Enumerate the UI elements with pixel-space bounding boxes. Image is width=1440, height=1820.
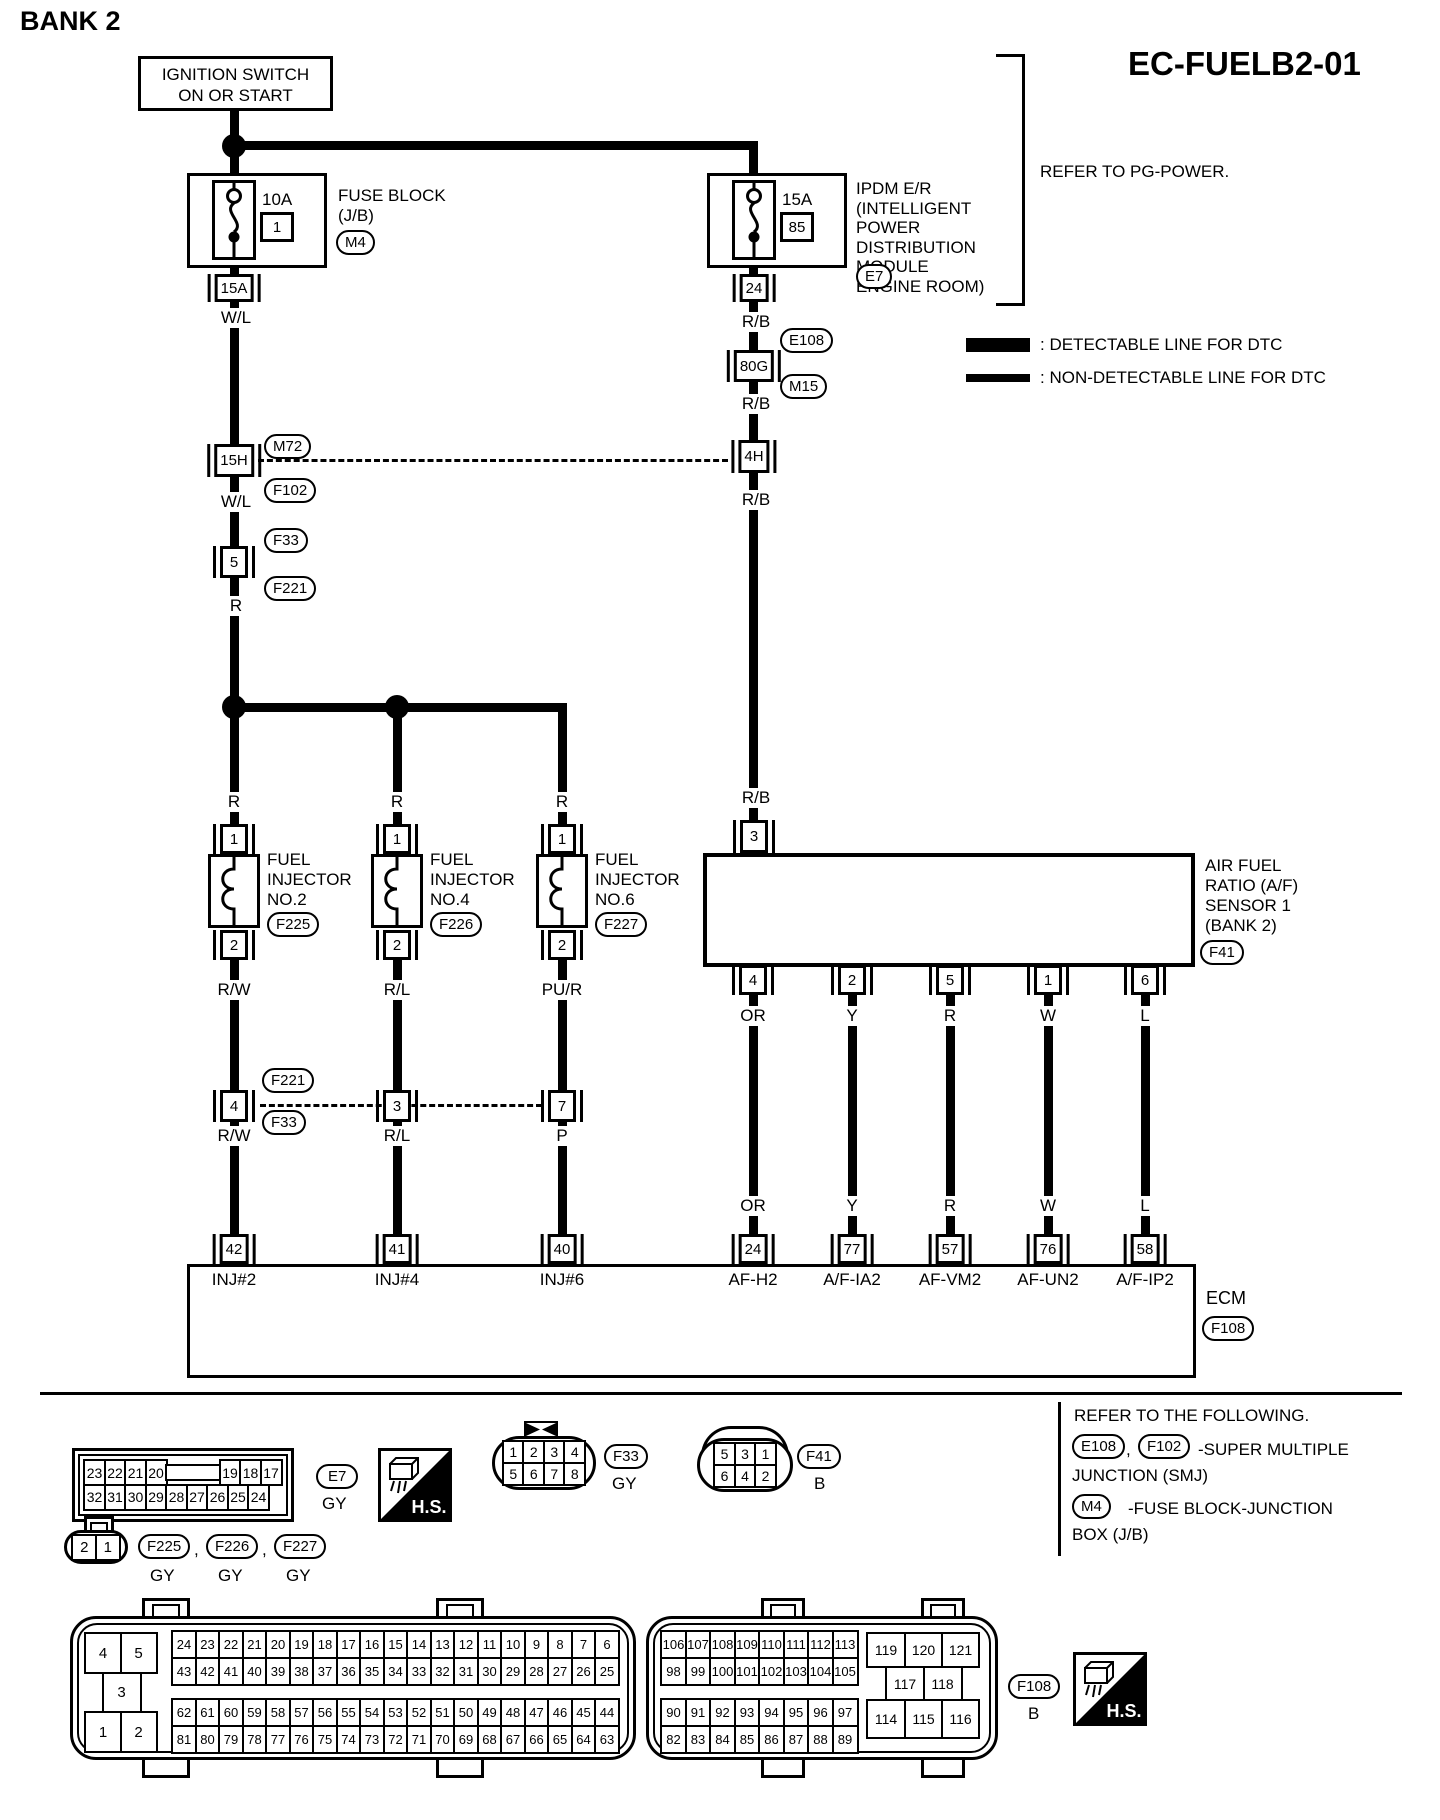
pin-cell: 47 — [524, 1698, 550, 1727]
connector-color: B — [1028, 1704, 1039, 1724]
injector-name: NO.4 — [430, 890, 470, 910]
page-code: EC-FUELB2-01 — [1128, 46, 1361, 82]
ecm-large-pin: 116 — [941, 1699, 980, 1739]
af-sensor-box — [703, 853, 1195, 967]
ecm-large-pin: 120 — [904, 1632, 944, 1668]
pin-cell: 75 — [312, 1725, 338, 1754]
pin-cell: 37 — [312, 1657, 338, 1686]
ecm-connector-tab — [761, 1598, 805, 1618]
refer-jb-text: -FUSE BLOCK-JUNCTION — [1128, 1499, 1333, 1519]
f33-connector-view: 12345678 — [492, 1436, 596, 1490]
connector-color: GY — [612, 1474, 637, 1494]
pin-cell: 46 — [547, 1698, 573, 1727]
coil-icon — [211, 857, 257, 925]
legend-nondetectable-bar — [966, 374, 1030, 382]
pin-cell: 110 — [758, 1630, 785, 1659]
connector-id-e7: E7 — [316, 1464, 358, 1489]
wire-color-label: R/B — [738, 490, 774, 510]
ecm-box — [187, 1264, 1196, 1378]
e7-connector-view: 23222120191817323130292827262524 — [72, 1448, 294, 1522]
pin-cell: 8 — [563, 1462, 586, 1486]
wire-color-label: R — [940, 1196, 960, 1216]
fuse-icon — [732, 180, 776, 260]
wire-color-label: R/B — [738, 394, 774, 414]
connector-color: GY — [218, 1566, 243, 1586]
refer-power-note: REFER TO PG-POWER. — [1040, 162, 1229, 182]
pin-cell: 25 — [594, 1657, 620, 1686]
pin-cell: 72 — [383, 1725, 409, 1754]
pin-5: 5 — [213, 546, 255, 578]
pin-cell: 70 — [430, 1725, 456, 1754]
pin-cell: 29 — [500, 1657, 526, 1686]
fuse-block-box — [187, 173, 327, 268]
pin-cell: 76 — [289, 1725, 315, 1754]
pin-cell: 106 — [660, 1630, 687, 1659]
injector-connector-view: 21 — [64, 1530, 128, 1564]
pin-cell: 33 — [406, 1657, 432, 1686]
f41-connector-view: 531642 — [697, 1438, 793, 1492]
wire-color-label: R/W — [213, 1126, 254, 1146]
connector-color: GY — [150, 1566, 175, 1586]
connector-id-f33: F33 — [262, 1110, 306, 1135]
wire — [230, 475, 239, 549]
hs-harness-icon: H.S. — [1072, 1652, 1148, 1726]
wire — [230, 141, 758, 150]
pin-cell: 74 — [336, 1725, 362, 1754]
ecm-large-pin: 119 — [866, 1632, 906, 1668]
legend-nondetectable-label: : NON-DETECTABLE LINE FOR DTC — [1040, 368, 1326, 388]
ecm-pin-40: 40 — [541, 1234, 584, 1264]
section-divider — [40, 1392, 1402, 1395]
ecm-grid-lower-right: 90919293949596978283848586878889 — [660, 1698, 859, 1754]
pin-cell: 101 — [734, 1657, 761, 1686]
pin-cell: 24 — [247, 1484, 270, 1511]
ecm-connector-tab — [142, 1758, 190, 1778]
pin-cell: 78 — [242, 1725, 268, 1754]
mid-pin-3: 3 — [376, 1090, 418, 1122]
refer-smj-text: -SUPER MULTIPLE — [1198, 1440, 1349, 1460]
pin-cell: 48 — [500, 1698, 526, 1727]
pin-4h: 4H — [731, 440, 776, 473]
pin-15h: 15H — [207, 444, 261, 477]
connector-id-f225: F225 — [267, 912, 319, 937]
pin-cell: 81 — [171, 1725, 197, 1754]
pin-cell: 40 — [242, 1657, 268, 1686]
ipdm-box — [707, 173, 847, 268]
ecm-grid-upper-right: 1061071081091101111121139899100101102103… — [660, 1630, 859, 1686]
ecm-large-pin: 5 — [120, 1632, 158, 1674]
pin-cell: 53 — [383, 1698, 409, 1727]
ignition-line2: ON OR START — [141, 85, 330, 106]
pin-15a: 15A — [208, 274, 261, 302]
ecm-connector-tab — [142, 1598, 190, 1618]
wire-color-label: W — [1036, 1006, 1060, 1026]
ignition-switch-box: IGNITION SWITCH ON OR START — [138, 56, 333, 111]
ignition-line1: IGNITION SWITCH — [141, 64, 330, 85]
pin-cell: 97 — [832, 1698, 859, 1727]
junction-dot — [222, 695, 246, 719]
wire-color-label: L — [1136, 1196, 1153, 1216]
pin-cell: 7 — [571, 1630, 597, 1659]
hs-harness-icon: H.S. — [378, 1448, 452, 1522]
connector-id-f33: F33 — [264, 528, 308, 553]
pin-cell: 103 — [783, 1657, 810, 1686]
injector-name: FUEL — [595, 850, 638, 870]
wire-color-label: R — [226, 596, 246, 616]
mid-pin-4: 4 — [213, 1090, 255, 1122]
pin-cell: 8 — [547, 1630, 573, 1659]
connector-color: GY — [286, 1566, 311, 1586]
ecm-pin: 58 — [1124, 1234, 1167, 1264]
wire-color-label: OR — [736, 1196, 770, 1216]
pin-cell: 111 — [783, 1630, 810, 1659]
pin-cell: 112 — [807, 1630, 834, 1659]
ecm-pin: 24 — [732, 1234, 775, 1264]
pin-cell: 66 — [524, 1725, 550, 1754]
pin-cell: 107 — [685, 1630, 712, 1659]
pin-cell: 79 — [218, 1725, 244, 1754]
pin-cell: 95 — [783, 1698, 810, 1727]
injector-name: NO.2 — [267, 890, 307, 910]
pin-cell: 68 — [477, 1725, 503, 1754]
fuse-amp-label: 10A — [262, 190, 292, 210]
refer-following-title: REFER TO THE FOLLOWING. — [1074, 1406, 1309, 1426]
connector-id-f225: F225 — [138, 1534, 190, 1559]
pin-cell: 108 — [709, 1630, 736, 1659]
pin-cell: 86 — [758, 1725, 785, 1754]
comma: , — [262, 1540, 267, 1560]
pin-cell: 89 — [832, 1725, 859, 1754]
comma: , — [194, 1540, 199, 1560]
wire — [230, 958, 239, 1092]
connector-id-f102: F102 — [1138, 1434, 1190, 1459]
pin-cell: 96 — [807, 1698, 834, 1727]
ecm-large-pin: 4 — [84, 1632, 122, 1674]
connector-id-m15: M15 — [780, 374, 827, 399]
injector-name: INJECTOR — [595, 870, 680, 890]
pin-24: 24 — [733, 274, 776, 302]
connector-id-f226: F226 — [206, 1534, 258, 1559]
pin-cell: 2 — [754, 1464, 777, 1488]
pin-cell: 19 — [289, 1630, 315, 1659]
injector-pin-top: 1 — [541, 824, 583, 854]
pin-cell: 83 — [685, 1725, 712, 1754]
sensor-pin-3: 3 — [733, 820, 775, 853]
pin-cell: 41 — [218, 1657, 244, 1686]
pin-cell: 91 — [685, 1698, 712, 1727]
pin-cell: 60 — [218, 1698, 244, 1727]
wire — [393, 958, 402, 1092]
legend-detectable-label: : DETECTABLE LINE FOR DTC — [1040, 335, 1282, 355]
pin-cell: 35 — [359, 1657, 385, 1686]
refer-smj-text2: JUNCTION (SMJ) — [1072, 1466, 1208, 1486]
fuse-number-box: 1 — [260, 212, 294, 242]
wire-color-label: Y — [842, 1006, 861, 1026]
wire-color-label: R/L — [380, 1126, 414, 1146]
wire-color-label: W — [1036, 1196, 1060, 1216]
ecm-large-pin: 117 — [885, 1666, 925, 1702]
connector-id-m72: M72 — [264, 434, 311, 459]
bracket — [257, 274, 260, 302]
pin-cell: 4 — [563, 1440, 586, 1464]
fuse-block-name2: (J/B) — [338, 206, 374, 226]
ecm-pin: 57 — [929, 1234, 972, 1264]
pin-cell: 16 — [359, 1630, 385, 1659]
connector-id-e108: E108 — [1072, 1434, 1125, 1459]
injector-name: NO.6 — [595, 890, 635, 910]
pin-cell: 84 — [709, 1725, 736, 1754]
refer-bracket — [996, 54, 1025, 306]
ecm-pin: 76 — [1027, 1234, 1070, 1264]
connector-id-m4: M4 — [1072, 1494, 1111, 1519]
wire-color-label: Y — [842, 1196, 861, 1216]
injector-pin-bottom: 2 — [376, 930, 418, 960]
pin-cell: 63 — [594, 1725, 620, 1754]
pin-cell: 98 — [660, 1657, 687, 1686]
wire-color-label: W/L — [217, 308, 255, 328]
pin-cell: 99 — [685, 1657, 712, 1686]
fuse-block-name1: FUSE BLOCK — [338, 186, 446, 206]
pin-cell: 102 — [758, 1657, 785, 1686]
f33-pin-grid: 12345678 — [502, 1440, 587, 1486]
pin-cell: 27 — [547, 1657, 573, 1686]
wiring-diagram-page: BANK 2 EC-FUELB2-01 REFER TO PG-POWER. :… — [0, 0, 1440, 1820]
pin-cell: 45 — [571, 1698, 597, 1727]
pin-cell: 77 — [265, 1725, 291, 1754]
connector-id-f33: F33 — [604, 1444, 648, 1469]
pin-cell: 54 — [359, 1698, 385, 1727]
injector-coil-box — [208, 854, 260, 928]
connector-id-m4: M4 — [336, 230, 375, 255]
pin-cell: 113 — [832, 1630, 859, 1659]
pin-cell: 51 — [430, 1698, 456, 1727]
legend-detectable-bar — [966, 338, 1030, 352]
ecm-large-pin: 3 — [102, 1672, 142, 1714]
ecm-pin-42: 42 — [213, 1234, 256, 1264]
refer-divider — [1058, 1402, 1061, 1556]
wire-color-label: R/L — [380, 980, 414, 1000]
mid-pin-7: 7 — [541, 1090, 583, 1122]
injector-name: INJECTOR — [267, 870, 352, 890]
f41-pin-grid: 531642 — [713, 1442, 777, 1488]
injector-name: INJECTOR — [430, 870, 515, 890]
connector-id-f108: F108 — [1202, 1316, 1254, 1341]
pin-cell: 104 — [807, 1657, 834, 1686]
sensor-name: AIR FUEL — [1205, 856, 1282, 876]
ecm-large-pin: 114 — [866, 1699, 906, 1739]
injector-pin-top: 1 — [376, 824, 418, 854]
pin-cell: 22 — [218, 1630, 244, 1659]
ecm-connector-tab — [761, 1758, 805, 1778]
ecm-large-pin: 2 — [120, 1711, 158, 1753]
pin-80g: 80G — [727, 350, 781, 382]
wire-color-label: P — [552, 1126, 571, 1146]
sensor-name: (BANK 2) — [1205, 916, 1277, 936]
wire-color-label: R — [940, 1006, 960, 1026]
coil-icon — [374, 857, 420, 925]
ipdm-amp-label: 15A — [782, 190, 812, 210]
pin-cell: 90 — [660, 1698, 687, 1727]
pin-cell: 11 — [477, 1630, 503, 1659]
pin-cell: 55 — [336, 1698, 362, 1727]
pin-cell: 44 — [594, 1698, 620, 1727]
ecm-connector-tab — [921, 1598, 965, 1618]
pin-cell: 87 — [783, 1725, 810, 1754]
sensor-pin: 1 — [1027, 965, 1069, 995]
pin-cell: 28 — [524, 1657, 550, 1686]
ecm-large-pin: 1 — [84, 1711, 122, 1753]
sensor-name: RATIO (A/F) — [1205, 876, 1298, 896]
wire-color-label: R — [387, 792, 407, 812]
pin-cell: 61 — [195, 1698, 221, 1727]
connector-id-f221: F221 — [264, 576, 316, 601]
pin-cell: 17 — [260, 1459, 283, 1486]
junction-dot — [222, 134, 246, 158]
ecm-connector-tab — [436, 1598, 484, 1618]
injector-pin-top: 1 — [213, 824, 255, 854]
connector-id-f227: F227 — [274, 1534, 326, 1559]
smj-dashed-link — [258, 459, 728, 462]
pin-cell — [165, 1464, 221, 1481]
pin-cell: 82 — [660, 1725, 687, 1754]
ecm-connector-tab — [921, 1758, 965, 1778]
wire-color-label: R/B — [738, 312, 774, 332]
wire-color-label: R/B — [738, 788, 774, 808]
wire-color-label: R — [552, 792, 572, 812]
connector-id-f227: F227 — [595, 912, 647, 937]
wire — [749, 470, 758, 822]
pin-cell: 23 — [195, 1630, 221, 1659]
connector-id-f102: F102 — [264, 478, 316, 503]
pin-cell: 24 — [171, 1630, 197, 1659]
pin-cell: 92 — [709, 1698, 736, 1727]
hs-label: H.S. — [411, 1497, 446, 1517]
pin-cell: 34 — [383, 1657, 409, 1686]
e7-pin-grid: 23222120191817323130292827262524 — [83, 1459, 283, 1511]
pin-cell: 56 — [312, 1698, 338, 1727]
fuse-icon — [212, 180, 256, 260]
connector-id-f41: F41 — [797, 1444, 841, 1469]
pin-cell: 105 — [832, 1657, 859, 1686]
pin-cell: 100 — [709, 1657, 736, 1686]
pin-cell: 57 — [289, 1698, 315, 1727]
pin-cell: 52 — [406, 1698, 432, 1727]
pin-cell: 58 — [265, 1698, 291, 1727]
pin-cell: 9 — [524, 1630, 550, 1659]
pin-cell: 31 — [453, 1657, 479, 1686]
pin-cell: 21 — [242, 1630, 268, 1659]
connector-id-f226: F226 — [430, 912, 482, 937]
pin-cell: 67 — [500, 1725, 526, 1754]
bracket — [208, 274, 211, 302]
pin-cell: 18 — [312, 1630, 338, 1659]
pin-cell: 85 — [734, 1725, 761, 1754]
connector-id-f221: F221 — [262, 1068, 314, 1093]
hs-label: H.S. — [1106, 1701, 1141, 1721]
sensor-pin: 5 — [929, 965, 971, 995]
pin-cell: 1 — [754, 1442, 777, 1466]
pin-cell: 36 — [336, 1657, 362, 1686]
ecm-grid-lower-left: 6261605958575655545352515049484746454481… — [171, 1698, 620, 1754]
pin-cell: 10 — [500, 1630, 526, 1659]
sensor-pin: 6 — [1124, 965, 1166, 995]
pin-cell: 2 — [71, 1534, 97, 1561]
pin-cell: 17 — [336, 1630, 362, 1659]
injector-pin-bottom: 2 — [213, 930, 255, 960]
ecm-pin: 77 — [831, 1234, 874, 1264]
connector-id-e108: E108 — [780, 328, 833, 353]
pin-cell: 88 — [807, 1725, 834, 1754]
wire-color-label: OR — [736, 1006, 770, 1026]
pin-cell: 49 — [477, 1698, 503, 1727]
ecm-large-pin: 121 — [941, 1632, 980, 1668]
sensor-name: SENSOR 1 — [1205, 896, 1291, 916]
connector-id-e7: E7 — [856, 264, 892, 289]
injector-name: FUEL — [430, 850, 473, 870]
injector-coil-box — [371, 854, 423, 928]
pin-cell: 109 — [734, 1630, 761, 1659]
ecm-pin-41: 41 — [376, 1234, 419, 1264]
coil-icon — [539, 857, 585, 925]
pin-cell: 64 — [571, 1725, 597, 1754]
pin-cell: 93 — [734, 1698, 761, 1727]
pin-cell: 1 — [95, 1534, 121, 1561]
pin-cell: 26 — [571, 1657, 597, 1686]
pin-cell: 32 — [430, 1657, 456, 1686]
connector-color: B — [814, 1474, 825, 1494]
wire-color-label: R/W — [213, 980, 254, 1000]
ipdm-fuse-number-box: 85 — [780, 212, 814, 242]
wire-color-label: PU/R — [538, 980, 587, 1000]
ipdm-name: IPDM E/R(INTELLIGENTPOWERDISTRIBUTIONMOD… — [856, 140, 984, 335]
sensor-pin: 4 — [732, 965, 774, 995]
sensor-pin: 2 — [831, 965, 873, 995]
pin-cell: 39 — [265, 1657, 291, 1686]
ecm-grid-upper-left: 2423222120191817161514131211109876434241… — [171, 1630, 620, 1686]
injector-pin-grid: 21 — [71, 1534, 121, 1561]
comma: , — [1126, 1440, 1131, 1460]
pin-cell: 59 — [242, 1698, 268, 1727]
pin-cell: 50 — [453, 1698, 479, 1727]
pin-cell: 43 — [171, 1657, 197, 1686]
wire-color-label: R — [224, 792, 244, 812]
pin-cell: 80 — [195, 1725, 221, 1754]
injector-name: FUEL — [267, 850, 310, 870]
ecm-connector-tab — [436, 1758, 484, 1778]
pin-cell: 14 — [406, 1630, 432, 1659]
injector-coil-box — [536, 854, 588, 928]
connector-id-f108: F108 — [1008, 1674, 1060, 1699]
pin-cell: 94 — [758, 1698, 785, 1727]
wire-color-label: L — [1136, 1006, 1153, 1026]
page-title: BANK 2 — [20, 6, 121, 36]
pin-cell: 6 — [594, 1630, 620, 1659]
wire — [558, 958, 567, 1092]
pin-cell: 15 — [383, 1630, 409, 1659]
wire-color-label: W/L — [217, 492, 255, 512]
connector-id-f41: F41 — [1200, 940, 1244, 965]
pin-cell: 62 — [171, 1698, 197, 1727]
ecm-large-pin: 115 — [904, 1699, 944, 1739]
junction-dot — [385, 695, 409, 719]
pin-cell: 42 — [195, 1657, 221, 1686]
pin-cell: 12 — [453, 1630, 479, 1659]
ecm-label: ECM — [1206, 1288, 1246, 1308]
pin-cell: 65 — [547, 1725, 573, 1754]
pin-cell: 20 — [265, 1630, 291, 1659]
pin-cell: 69 — [453, 1725, 479, 1754]
pin-cell: 38 — [289, 1657, 315, 1686]
